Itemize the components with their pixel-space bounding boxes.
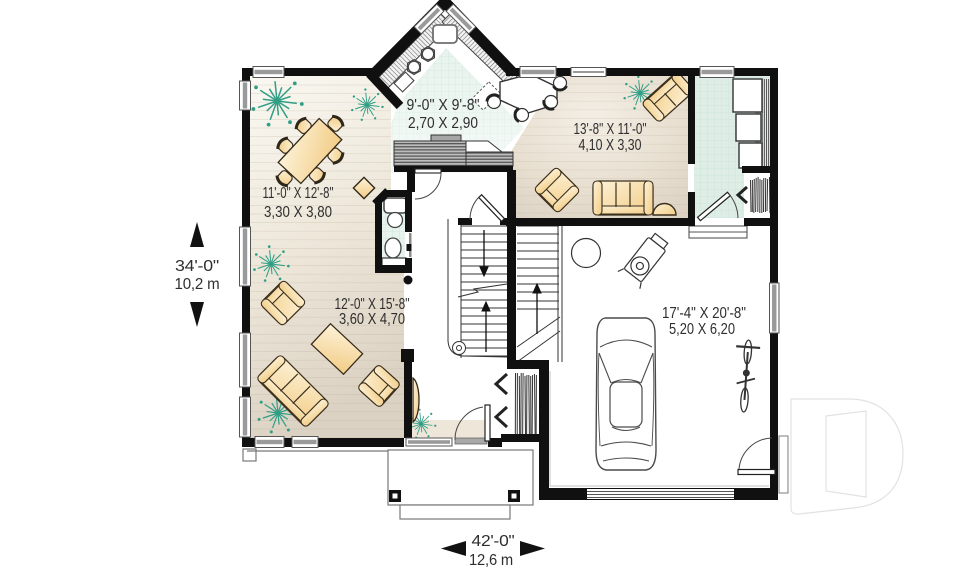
svg-text:13'-8" X 11'-0": 13'-8" X 11'-0" bbox=[574, 121, 647, 138]
svg-text:2,70 X 2,90: 2,70 X 2,90 bbox=[408, 115, 478, 132]
svg-text:17'-4" X 20'-8": 17'-4" X 20'-8" bbox=[662, 305, 746, 322]
svg-text:5,20 X 6,20: 5,20 X 6,20 bbox=[669, 321, 735, 338]
svg-text:3,60 X 4,70: 3,60 X 4,70 bbox=[339, 311, 405, 328]
svg-text:34'-0": 34'-0" bbox=[175, 258, 219, 275]
svg-text:9'-0" X 9'-8": 9'-0" X 9'-8" bbox=[407, 97, 480, 114]
svg-text:3,30 X 3,80: 3,30 X 3,80 bbox=[264, 204, 332, 221]
svg-text:11'-0" X 12'-8": 11'-0" X 12'-8" bbox=[263, 185, 334, 202]
svg-text:42'-0": 42'-0" bbox=[472, 533, 515, 550]
svg-text:10,2 m: 10,2 m bbox=[175, 276, 220, 293]
svg-text:4,10 X 3,30: 4,10 X 3,30 bbox=[579, 137, 642, 154]
svg-text:12,6 m: 12,6 m bbox=[469, 552, 513, 569]
